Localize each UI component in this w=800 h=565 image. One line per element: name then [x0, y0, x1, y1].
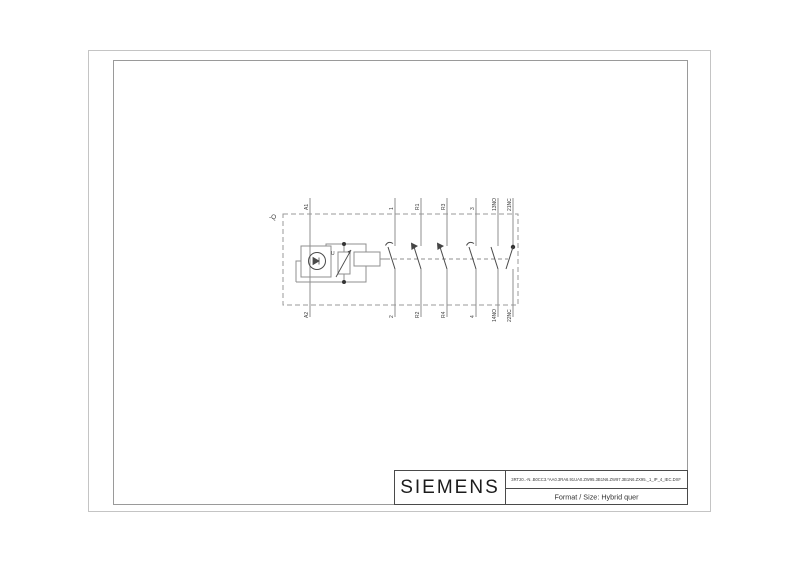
contact-hook-icon: [386, 242, 394, 245]
contact-no-r3: [440, 247, 447, 269]
coil-symbol: [354, 252, 380, 266]
siemens-logo: SIEMENS: [400, 477, 500, 499]
terminal-label: 2: [389, 315, 395, 318]
terminal-label: R2: [415, 311, 421, 318]
format-row: Format / Size: Hybrid quer: [506, 489, 687, 504]
contact-no-r1: [414, 247, 421, 269]
document-code: 3RT20..-N..B0CC3.*AA0.3RA6.91UA0.ZW95.3B…: [512, 477, 682, 482]
terminal-label: 13NO: [492, 198, 498, 211]
terminal-label: R4: [441, 311, 447, 318]
bottom-terminal-labels: A2 2 R2 R4 4 14NO 22NC: [304, 309, 513, 322]
terminal-label: 22NC: [507, 309, 513, 322]
terminal-label: 1: [389, 207, 395, 210]
device-tag-label: -Q: [269, 214, 276, 221]
contact-no-3: [469, 247, 476, 269]
title-block-right-column: 3RT20..-N..B0CC3.*AA0.3RA6.91UA0.ZW95.3B…: [506, 471, 687, 504]
title-block: SIEMENS 3RT20..-N..B0CC3.*AA0.3RA6.91UA0…: [394, 470, 688, 505]
document-code-row: 3RT20..-N..B0CC3.*AA0.3RA6.91UA0.ZW95.3B…: [506, 471, 687, 489]
terminal-label: 21NC: [507, 198, 513, 211]
terminal-label: 3: [470, 207, 476, 210]
circuit-schematic: -Q: [255, 188, 535, 333]
conductor-lines: [310, 198, 513, 317]
contact-no-1: [388, 247, 395, 269]
contact-nc-21: [506, 247, 513, 269]
terminal-label: A2: [304, 312, 310, 318]
contact-hook-icon: [467, 242, 475, 245]
top-terminal-labels: A1 1 R1 R3 3 13NO 21NC: [304, 198, 513, 211]
terminal-label: 14NO: [492, 309, 498, 322]
contact-arrow-icons: [411, 243, 444, 251]
junction-dots: [342, 242, 515, 284]
drawing-page: -Q: [0, 0, 800, 565]
terminal-label: R3: [441, 203, 447, 210]
diode-icon: [313, 258, 319, 265]
terminal-label: 4: [470, 315, 476, 318]
format-label: Format / Size: Hybrid quer: [554, 493, 638, 501]
terminal-label: A1: [304, 204, 310, 210]
brand-cell: SIEMENS: [395, 471, 506, 504]
contact-no-13: [491, 247, 498, 269]
terminal-label: R1: [415, 203, 421, 210]
contact-blades: [386, 242, 514, 269]
varistor-voltage-label: U: [331, 251, 335, 257]
